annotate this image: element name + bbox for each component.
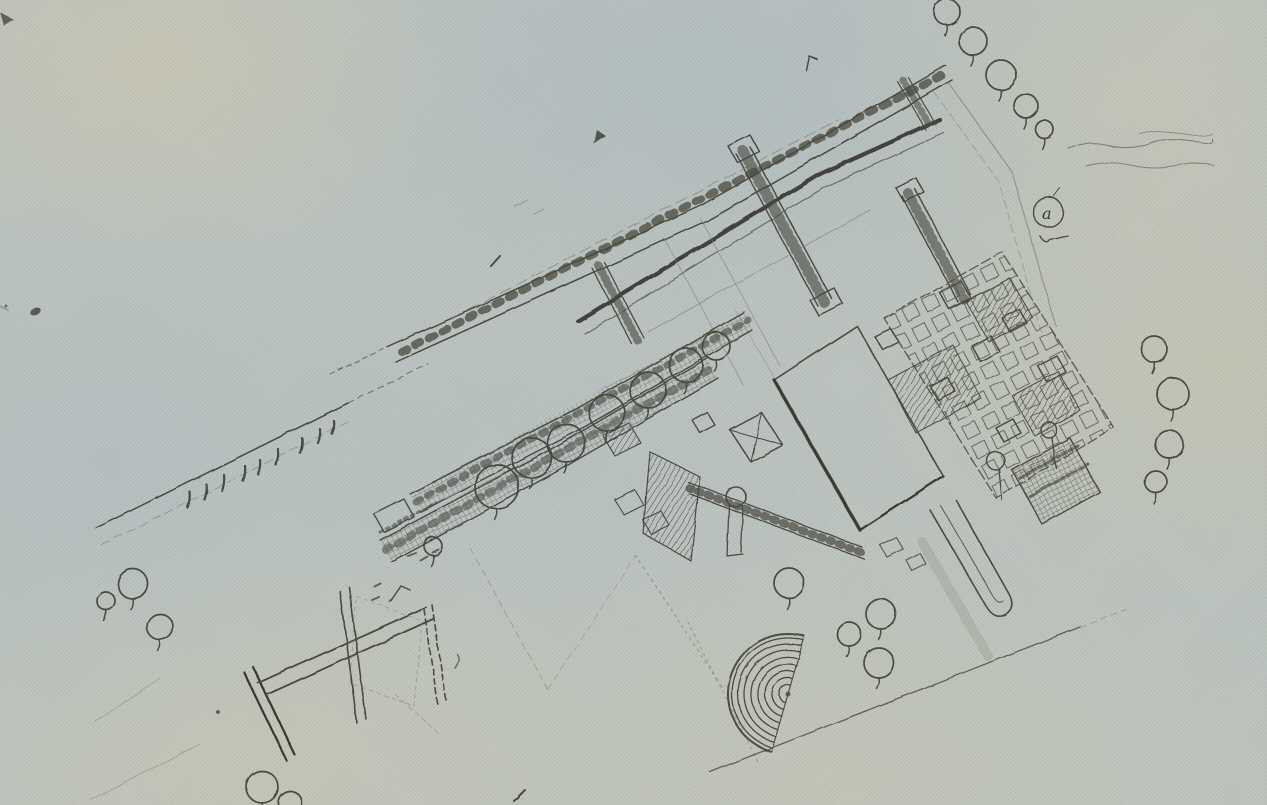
scan-grain-overlay: [0, 0, 1267, 805]
site-plan-drawing: a: [0, 0, 1267, 805]
scanned-page: a: [0, 0, 1267, 805]
